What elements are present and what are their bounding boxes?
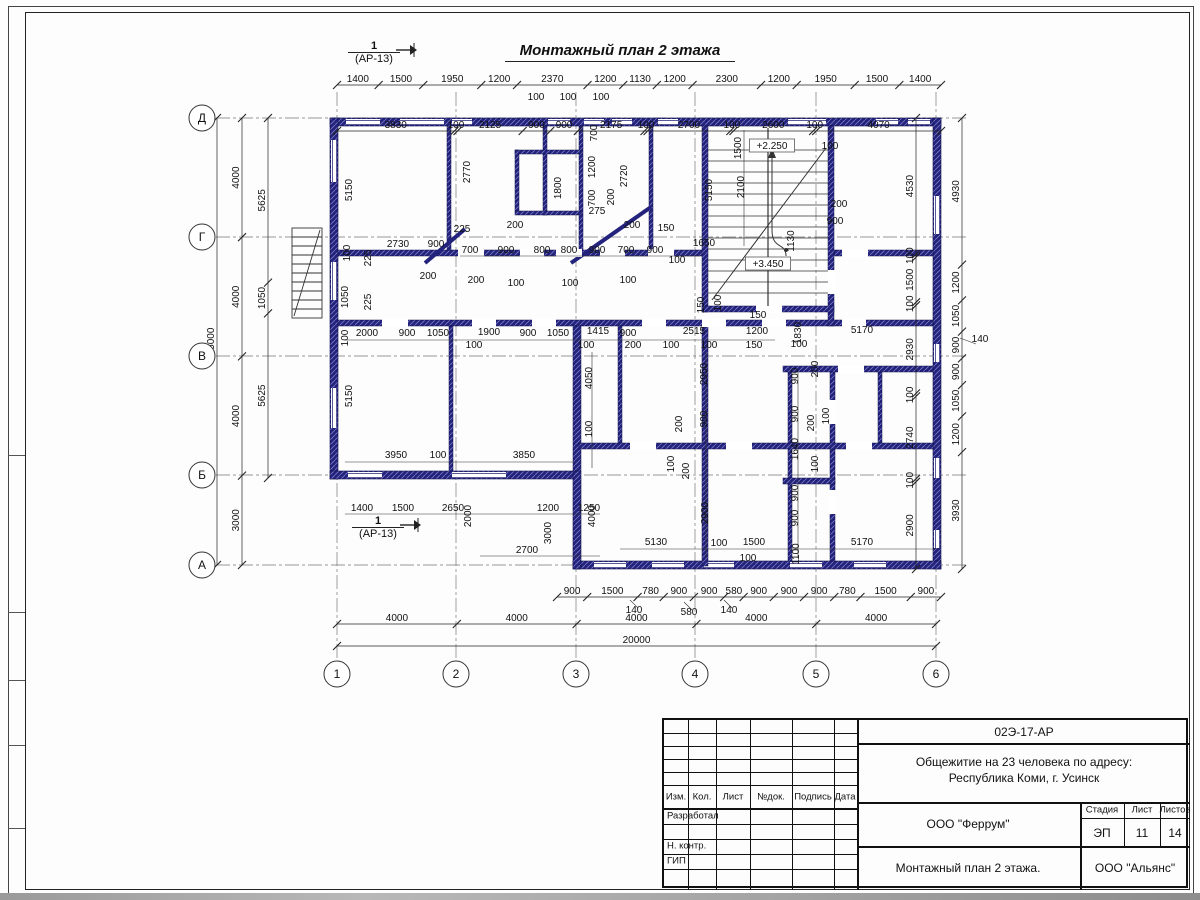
dim-label: 580 bbox=[681, 607, 698, 618]
dim-label: 900 bbox=[918, 586, 935, 597]
axis-bubble-row-А-label: А bbox=[198, 558, 206, 572]
dim-label: 4930 bbox=[951, 180, 962, 203]
axis-bubble-col-2-label: 2 bbox=[453, 667, 460, 681]
dim-label: 1200 bbox=[537, 503, 560, 514]
tb-header-kol: Кол. bbox=[693, 792, 712, 803]
dim-label: 200 bbox=[674, 415, 685, 432]
section-number: 1 bbox=[348, 40, 400, 53]
tb-role-gip: ГИП bbox=[667, 856, 686, 867]
tb-header-list: Лист bbox=[723, 792, 744, 803]
dim-label: 200 bbox=[806, 414, 817, 431]
dim-label: 5150 bbox=[344, 384, 355, 407]
dim-label: 1640 bbox=[790, 437, 801, 460]
dim-label: 1400 bbox=[909, 74, 932, 85]
axis-bubble-row-Д-label: Д bbox=[198, 111, 206, 125]
dim-label: 1130 bbox=[786, 230, 797, 252]
dim-label: 5170 bbox=[851, 537, 874, 548]
dim-label: 5625 bbox=[257, 384, 268, 407]
dim-label: 580 bbox=[726, 586, 743, 597]
dim-label: 4000 bbox=[386, 613, 409, 624]
dim-label: 100 bbox=[578, 340, 595, 351]
axis-bubble-col-3-label: 3 bbox=[573, 667, 580, 681]
dim-label: 900 bbox=[790, 484, 801, 501]
dim-label: 200 bbox=[420, 271, 437, 282]
dim-label: 700 bbox=[589, 124, 600, 141]
axis-bubble-row-Г-label: Г bbox=[199, 230, 206, 244]
dim-label: 1050 bbox=[547, 328, 570, 339]
dim-label: 900 bbox=[790, 509, 801, 526]
dim-label: +2.250 bbox=[757, 141, 788, 152]
dim-label: 1500 bbox=[390, 74, 413, 85]
tb-sheet-label: Лист bbox=[1132, 805, 1153, 816]
main-staircase bbox=[708, 128, 828, 306]
axis-bubble-col-5-label: 5 bbox=[813, 667, 820, 681]
section-sheet-ref: (АР-13) bbox=[352, 528, 404, 540]
dim-label: 275 bbox=[589, 206, 606, 217]
dim-label: 1500 bbox=[874, 586, 897, 597]
dim-label: 1950 bbox=[441, 74, 464, 85]
dim-label: 100 bbox=[905, 472, 916, 489]
dim-label: 900 bbox=[428, 239, 445, 250]
dim-label: 1200 bbox=[664, 74, 687, 85]
dim-label: 3850 bbox=[513, 450, 536, 461]
dim-label: 900 bbox=[790, 367, 801, 384]
dim-label: 5130 bbox=[645, 537, 668, 548]
section-marker-top: 1 (АР-13) bbox=[348, 40, 400, 65]
dim-label: 4000 bbox=[865, 613, 888, 624]
dim-label: 1050 bbox=[951, 304, 962, 327]
dim-label: 100 bbox=[724, 120, 741, 131]
dim-label: 100 bbox=[905, 247, 916, 264]
dim-label: 1200 bbox=[746, 326, 769, 337]
dim-label: 4000 bbox=[506, 613, 529, 624]
dim-label: 1050 bbox=[427, 328, 450, 339]
dim-label: 100 bbox=[528, 92, 545, 103]
dim-label: 2650 bbox=[442, 503, 465, 514]
dim-label: 100 bbox=[448, 120, 465, 131]
dim-label: 150 bbox=[750, 310, 767, 321]
dim-label: 1200 bbox=[594, 74, 617, 85]
dim-label: 100 bbox=[638, 120, 655, 131]
dim-label: 225 bbox=[363, 293, 374, 310]
dim-label: 2730 bbox=[387, 239, 410, 250]
dim-label: 4000 bbox=[587, 504, 598, 527]
dim-label: 780 bbox=[839, 586, 856, 597]
dim-label: 100 bbox=[562, 278, 579, 289]
section-arrow-icon bbox=[400, 517, 422, 533]
scan-edge-band bbox=[0, 893, 1200, 900]
dim-label: 700 bbox=[462, 245, 479, 256]
dim-label: 2100 bbox=[736, 175, 747, 198]
dim-label: 900 bbox=[620, 328, 637, 339]
dim-label: 100 bbox=[822, 141, 839, 152]
dim-label: 1200 bbox=[951, 423, 962, 446]
dim-label: 3830 bbox=[385, 120, 408, 131]
dim-label: 900 bbox=[498, 245, 515, 256]
dim-label: 900 bbox=[589, 245, 606, 256]
dim-label: 140 bbox=[626, 605, 643, 616]
dim-label: 150 bbox=[658, 223, 675, 234]
tb-project-line2: Республика Коми, г. Усинск bbox=[949, 771, 1100, 785]
dim-label: 1900 bbox=[478, 327, 501, 338]
dim-label: 3930 bbox=[951, 499, 962, 522]
dim-label: 900 bbox=[699, 410, 710, 427]
dim-label: 900 bbox=[811, 586, 828, 597]
section-number: 1 bbox=[352, 515, 404, 528]
dim-label: 2950 bbox=[699, 362, 710, 385]
dim-label: 2175 bbox=[600, 120, 623, 131]
dim-label: 2600 bbox=[762, 120, 785, 131]
dim-label: 100 bbox=[342, 244, 353, 261]
dim-label: 1500 bbox=[601, 586, 624, 597]
dim-label: 1050 bbox=[951, 389, 962, 412]
dim-label: 200 bbox=[625, 340, 642, 351]
dim-label: 2370 bbox=[541, 74, 564, 85]
dim-label: 200 bbox=[468, 275, 485, 286]
dim-label: 2700 bbox=[516, 545, 539, 556]
tb-project-line1: Общежитие на 23 человека по адресу: bbox=[916, 755, 1132, 769]
dim-label: 200 bbox=[681, 462, 692, 479]
dim-label: 780 bbox=[642, 586, 659, 597]
dim-label: 100 bbox=[584, 420, 595, 437]
dim-label: 700 bbox=[618, 245, 635, 256]
dim-label: 100 bbox=[711, 538, 728, 549]
dim-label: 3950 bbox=[385, 450, 408, 461]
dim-label: 1415 bbox=[587, 326, 610, 337]
axis-bubble-row-В-label: В bbox=[198, 349, 206, 363]
dim-label: 5625 bbox=[257, 189, 268, 212]
dim-label: 200 bbox=[831, 199, 848, 210]
dim-label: 150 bbox=[696, 296, 707, 313]
title-block: Изм. Кол. Лист №док. Подпись Дата Разраб… bbox=[662, 718, 1188, 888]
dim-label: 100 bbox=[430, 450, 447, 461]
dim-label: 900 bbox=[564, 586, 581, 597]
tb-header-izm: Изм. bbox=[666, 792, 686, 803]
dim-label: 100 bbox=[340, 329, 351, 346]
dim-label: 200 bbox=[606, 188, 617, 205]
dim-label: 2770 bbox=[462, 160, 473, 183]
dim-label: 100 bbox=[821, 407, 832, 424]
dim-label: 2740 bbox=[905, 426, 916, 449]
dim-label: 1800 bbox=[553, 176, 564, 199]
dim-label: 2000 bbox=[463, 504, 474, 527]
dim-label: 100 bbox=[508, 278, 525, 289]
dim-label: 900 bbox=[827, 216, 844, 227]
dim-label: 4530 bbox=[905, 175, 916, 198]
dim-label: 1500 bbox=[743, 537, 766, 548]
dim-label: 1130 bbox=[629, 74, 651, 85]
dim-label: 1500 bbox=[392, 503, 415, 514]
dim-label: 900 bbox=[790, 405, 801, 422]
dim-label: 100 bbox=[905, 295, 916, 312]
dim-label: 900 bbox=[951, 363, 962, 380]
external-stair bbox=[292, 228, 322, 318]
dim-label: 1400 bbox=[351, 503, 374, 514]
dim-label: 20000 bbox=[623, 635, 651, 646]
tb-header-date: Дата bbox=[834, 792, 855, 803]
dim-label: 4000 bbox=[231, 404, 242, 427]
dim-label: 1200 bbox=[768, 74, 791, 85]
dim-label: 900 bbox=[556, 120, 573, 131]
dim-label: 200 bbox=[624, 220, 641, 231]
dim-label: 100 bbox=[713, 294, 724, 311]
dim-label: 4050 bbox=[584, 366, 595, 389]
dim-label: 100 bbox=[810, 455, 821, 472]
dim-label: 100 bbox=[663, 340, 680, 351]
dim-label: 100 bbox=[701, 340, 718, 351]
plan-title: Монтажный план 2 этажа bbox=[505, 42, 735, 62]
tb-sheet-value: 11 bbox=[1136, 826, 1148, 840]
section-arrow-icon bbox=[396, 42, 418, 58]
dim-label: 2515 bbox=[683, 326, 706, 337]
dim-label: 2300 bbox=[716, 74, 739, 85]
dim-label: 100 bbox=[740, 553, 757, 564]
dim-label: 900 bbox=[520, 328, 537, 339]
dim-label: 100 bbox=[905, 386, 916, 403]
dim-label: 225 bbox=[454, 224, 471, 235]
dim-label: 100 bbox=[791, 339, 808, 350]
dim-label: 2900 bbox=[905, 514, 916, 537]
dim-label: 900 bbox=[671, 586, 688, 597]
dim-label: 2720 bbox=[619, 164, 630, 187]
dim-label: 4000 bbox=[231, 285, 242, 308]
tb-sheets-label: Листов bbox=[1160, 805, 1191, 816]
tb-role-ncontrol: Н. контр. bbox=[667, 841, 706, 852]
dim-label: 100 bbox=[620, 275, 637, 286]
dim-label: 1050 bbox=[340, 285, 351, 308]
axis-bubble-col-1-label: 1 bbox=[334, 667, 341, 681]
dim-label: 1050 bbox=[257, 286, 268, 309]
dim-label: 1200 bbox=[488, 74, 511, 85]
dim-label: 800 bbox=[534, 245, 551, 256]
dim-label: 1400 bbox=[347, 74, 370, 85]
tb-header-sign: Подпись bbox=[794, 792, 832, 803]
dim-label: 5150 bbox=[344, 178, 355, 201]
dim-label: 100 bbox=[560, 92, 577, 103]
dim-label: 900 bbox=[750, 586, 767, 597]
dim-label: 1100 bbox=[791, 543, 802, 565]
dim-label: 1200 bbox=[951, 271, 962, 294]
dim-label: 2700 bbox=[678, 120, 701, 131]
section-sheet-ref: (АР-13) bbox=[348, 53, 400, 65]
dim-label: 100 bbox=[806, 120, 823, 131]
dim-label: 140 bbox=[972, 334, 989, 345]
dim-label: 900 bbox=[781, 586, 798, 597]
dim-label: 1500 bbox=[733, 136, 744, 159]
dim-label: 100 bbox=[593, 92, 610, 103]
tb-contractor-org: ООО "Альянс" bbox=[1095, 861, 1175, 875]
section-marker-bottom: 1 (АР-13) bbox=[352, 515, 404, 540]
dim-label: 1500 bbox=[905, 268, 916, 291]
dim-label: 700 bbox=[587, 189, 598, 206]
dim-label: 900 bbox=[701, 586, 718, 597]
dim-label: 900 bbox=[528, 120, 545, 131]
dim-label: 900 bbox=[399, 328, 416, 339]
dim-label: 200 bbox=[507, 220, 524, 231]
tb-header-doc: №док. bbox=[757, 792, 785, 803]
dim-label: 3000 bbox=[231, 509, 242, 532]
dim-label: 1950 bbox=[815, 74, 838, 85]
axis-bubble-col-6-label: 6 bbox=[933, 667, 940, 681]
dim-label: 2930 bbox=[905, 338, 916, 361]
dim-label: 225 bbox=[363, 249, 374, 266]
dim-label: 1200 bbox=[587, 155, 598, 178]
dim-label: 2000 bbox=[356, 328, 379, 339]
dim-label: 100 bbox=[466, 340, 483, 351]
dim-label: 4000 bbox=[745, 613, 768, 624]
dim-label: 4070 bbox=[867, 120, 890, 131]
dim-label: 1500 bbox=[866, 74, 889, 85]
tb-sheet-title: Монтажный план 2 этажа. bbox=[896, 861, 1041, 875]
dim-label: 800 bbox=[561, 245, 578, 256]
drawing-sheet: 1400150019501200237012001130120023001200… bbox=[0, 0, 1200, 900]
dim-label: 3000 bbox=[543, 521, 554, 544]
dim-label: 4000 bbox=[231, 166, 242, 189]
dim-label: 150 bbox=[746, 340, 763, 351]
dim-label: 5170 bbox=[851, 325, 874, 336]
dim-label: 100 bbox=[669, 255, 686, 266]
tb-designer-org: ООО "Феррум" bbox=[927, 817, 1010, 831]
dim-label: 140 bbox=[721, 605, 738, 616]
dim-label: 1650 bbox=[693, 238, 716, 249]
axis-bubble-col-4-label: 4 bbox=[692, 667, 699, 681]
dim-label: +3.450 bbox=[753, 259, 784, 270]
tb-sheets-value: 14 bbox=[1168, 826, 1181, 840]
tb-role-developer: Разработал bbox=[667, 811, 719, 822]
dim-label: 2125 bbox=[479, 120, 502, 131]
tb-doc-number: 02Э-17-АР bbox=[994, 725, 1053, 739]
dim-label: 200 bbox=[810, 360, 821, 377]
dim-label: 900 bbox=[647, 245, 664, 256]
tb-stage-label: Стадия bbox=[1086, 805, 1118, 816]
dim-label: 100 bbox=[666, 455, 677, 472]
tb-stage-value: ЭП bbox=[1093, 826, 1110, 840]
dim-label: 2900 bbox=[700, 501, 711, 524]
axis-bubble-row-Б-label: Б bbox=[198, 468, 206, 482]
dim-label: 900 bbox=[951, 336, 962, 353]
dim-label: 5150 bbox=[704, 178, 715, 201]
